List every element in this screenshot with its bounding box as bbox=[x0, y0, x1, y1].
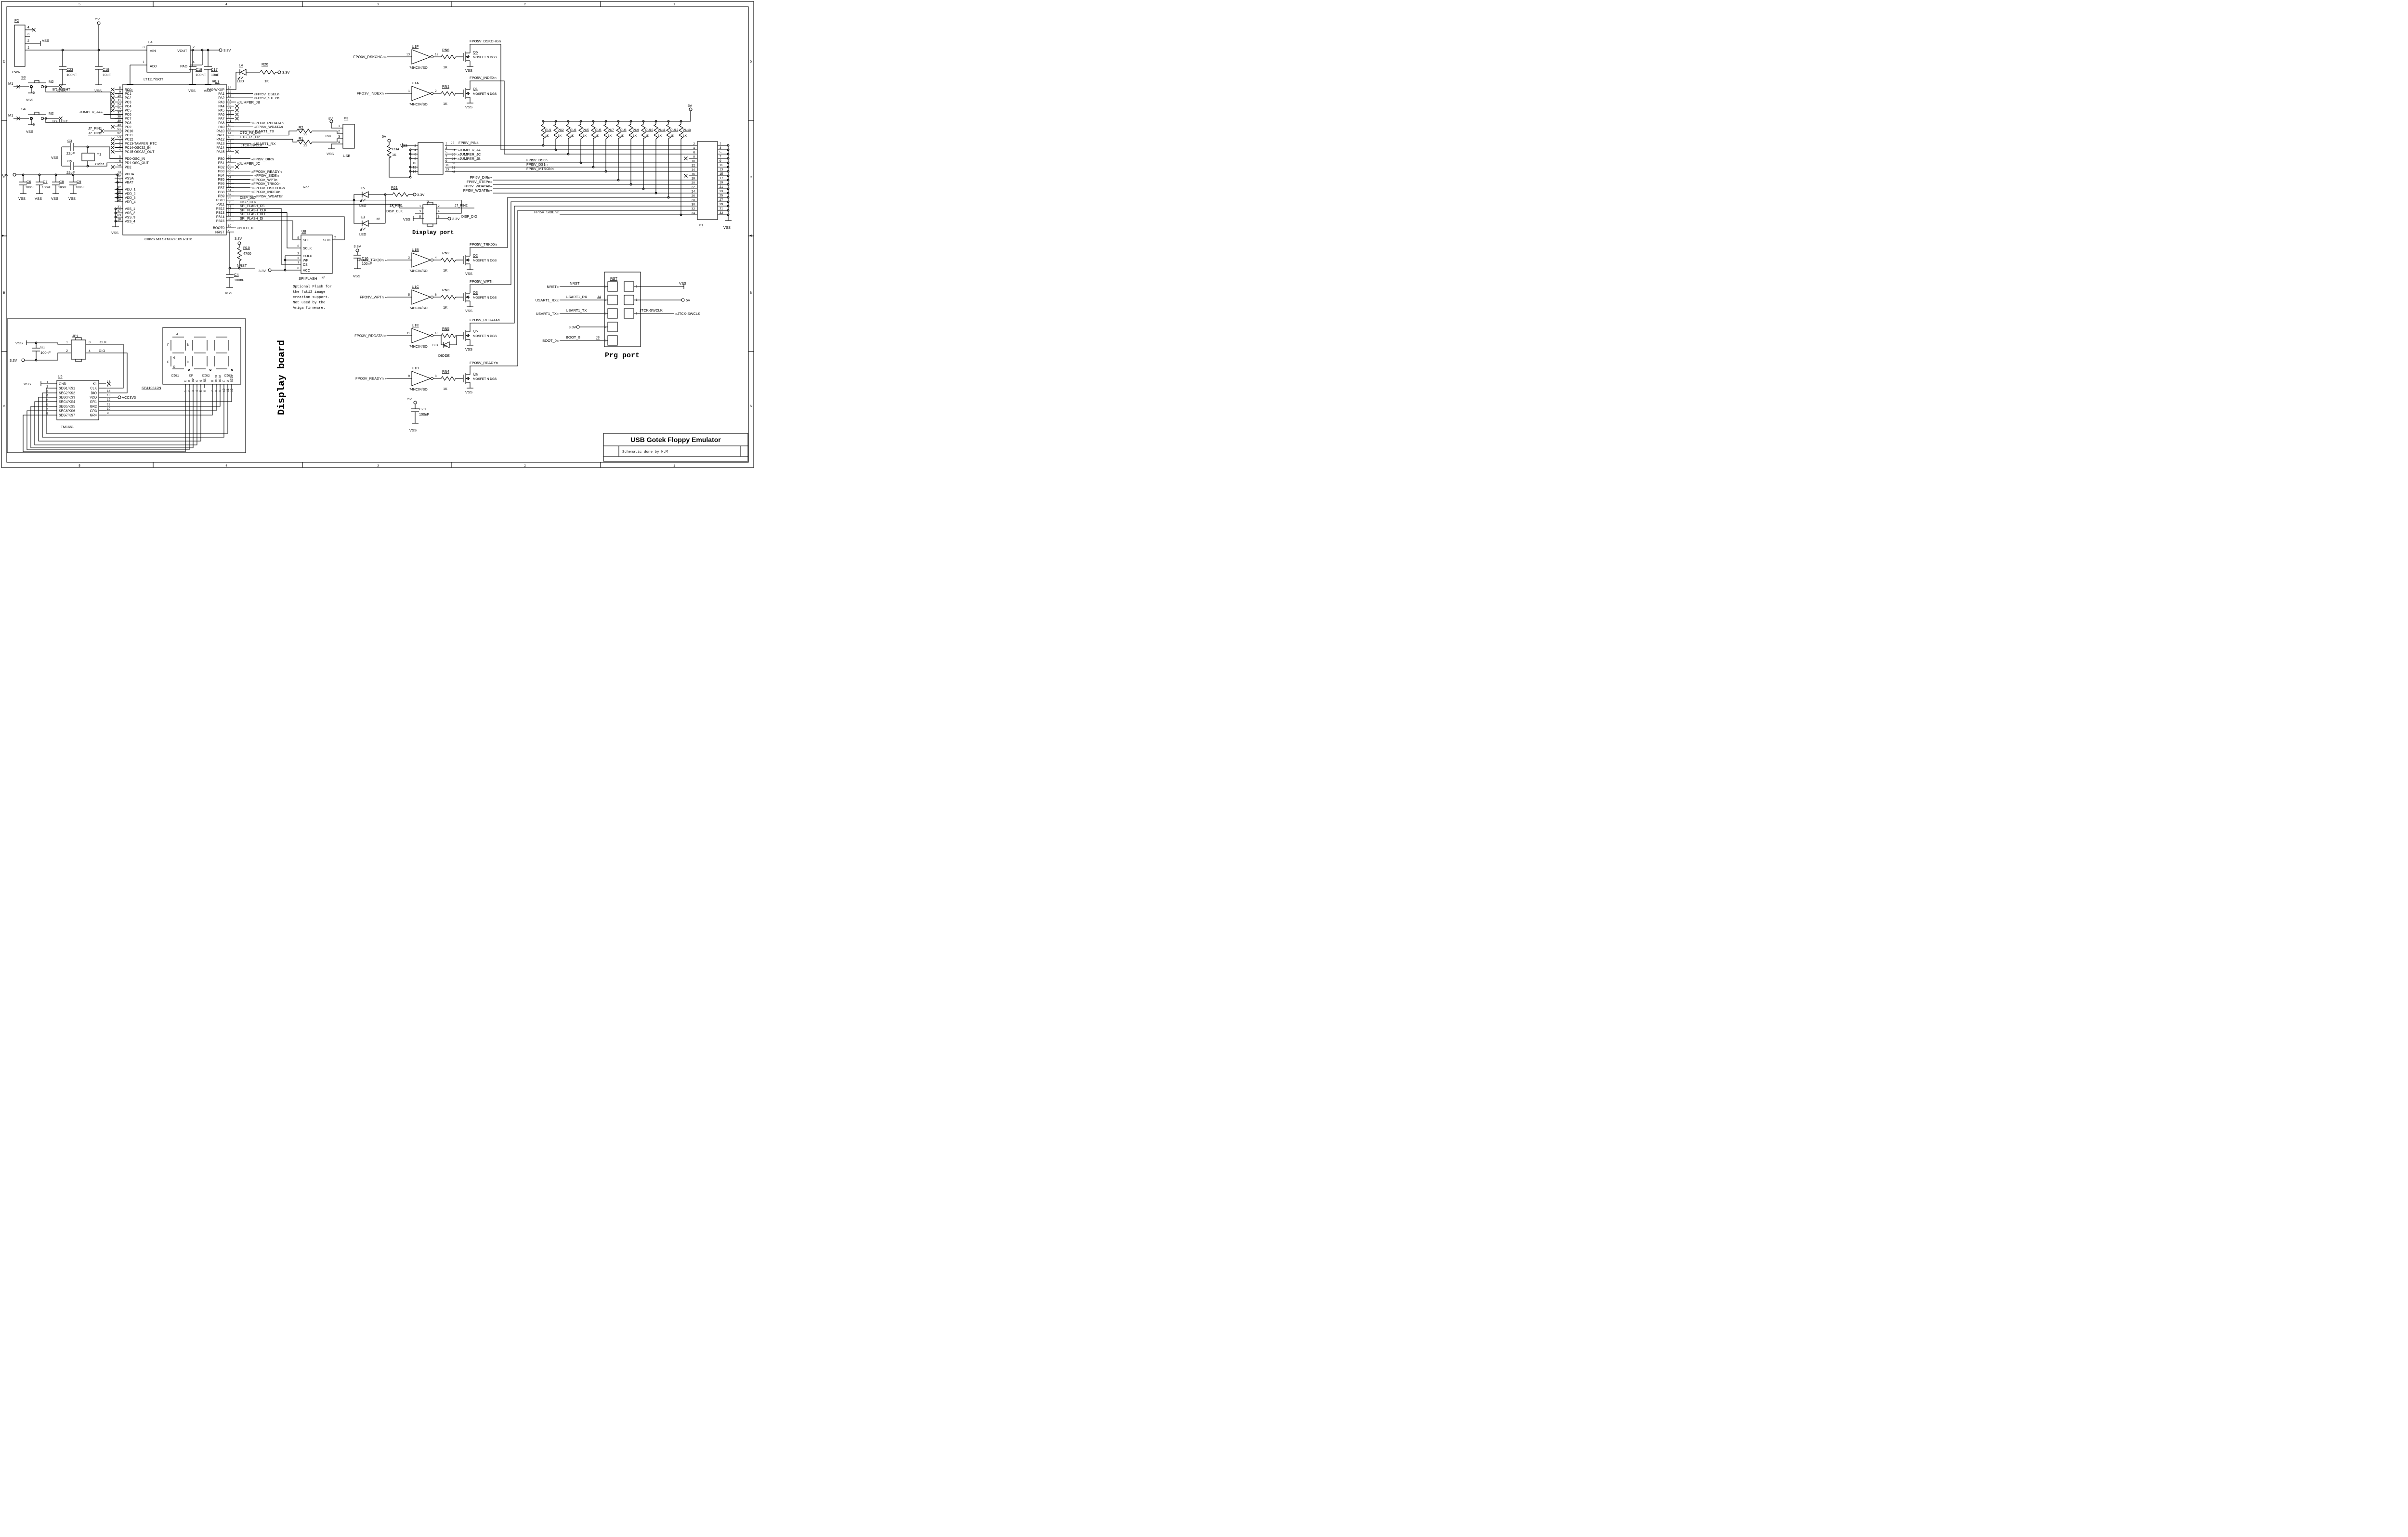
label: J7_PIN2 bbox=[455, 204, 468, 208]
label: 5V bbox=[95, 17, 100, 21]
net-label: FPO5V_WPTn bbox=[470, 279, 494, 284]
pin-number: 7 bbox=[445, 155, 447, 158]
pin-name: VDD_3 bbox=[125, 196, 136, 200]
zone-number: 1 bbox=[673, 464, 675, 468]
pin-number: 3 bbox=[720, 146, 721, 150]
resistor-value: 1K bbox=[683, 134, 687, 138]
display-pin-number: 5 bbox=[199, 390, 203, 392]
power-terminal-icon bbox=[219, 49, 222, 52]
label: RST bbox=[610, 276, 617, 281]
pin-number: 42 bbox=[228, 123, 232, 127]
resistor-icon bbox=[387, 145, 391, 158]
label: VSS bbox=[225, 291, 232, 295]
pin-number: 1 bbox=[445, 142, 447, 145]
label: 2 bbox=[338, 130, 340, 133]
label: FPI5V_SIDEn« bbox=[534, 210, 559, 214]
pin-number: 4 bbox=[435, 256, 437, 260]
mcu-part: Cortex M3 STM32F105 RBT6 bbox=[144, 237, 192, 241]
label: SPI_FLASH_CLK bbox=[240, 209, 267, 212]
resistor-icon bbox=[566, 124, 570, 139]
label: R1 bbox=[299, 136, 303, 141]
pin-number: 6 bbox=[435, 293, 437, 297]
resistor-icon bbox=[667, 124, 670, 139]
label: 2 bbox=[193, 46, 195, 49]
display-pin-name: DIG3 bbox=[215, 375, 218, 382]
label: «FPI5V_WDATAn bbox=[254, 125, 283, 129]
zone-letter: C bbox=[750, 176, 752, 179]
vss-label: VSS bbox=[465, 347, 472, 352]
zone-letter: D bbox=[3, 60, 5, 64]
button-cap bbox=[35, 112, 39, 115]
pin-name: PA13 bbox=[216, 142, 224, 145]
label: 3 bbox=[27, 33, 29, 36]
label: M2 bbox=[49, 111, 53, 116]
pin-number: 46 bbox=[228, 140, 232, 143]
net-label: FPO3V_INDEXn » bbox=[357, 91, 387, 96]
label: JA bbox=[452, 149, 456, 152]
label: C17 bbox=[211, 67, 218, 72]
label: »JUMPER_JC bbox=[458, 152, 481, 156]
pin-number: 11 bbox=[118, 99, 121, 102]
resistor-value: 1K bbox=[443, 102, 447, 106]
label: 3.3V bbox=[569, 325, 576, 329]
label: J4 bbox=[597, 295, 601, 299]
pin-name: VDD_4 bbox=[125, 201, 136, 204]
label: 3.3V bbox=[1, 173, 8, 177]
resistor-value: 1K bbox=[658, 134, 662, 138]
label: DIG3 bbox=[224, 374, 232, 378]
pin-name: PC11 bbox=[125, 134, 133, 137]
pin-number: 29 bbox=[228, 197, 232, 200]
label: FPI5V_WDATAn« bbox=[464, 184, 492, 188]
label: «FPI5V_SIDEn bbox=[254, 173, 279, 178]
pin-name: PA2 bbox=[218, 97, 224, 100]
display-pin-number: 1 bbox=[184, 390, 187, 392]
pin-number: 15 bbox=[228, 91, 232, 94]
resistor-icon bbox=[629, 124, 633, 139]
label: C7 bbox=[43, 180, 48, 184]
led-icon bbox=[363, 221, 368, 226]
pin-number: 1 bbox=[636, 285, 638, 288]
prg-pin-box bbox=[608, 295, 617, 305]
display-pin-name: C bbox=[196, 380, 199, 382]
label: 3 bbox=[143, 46, 144, 49]
pin-number: 57 bbox=[228, 176, 232, 180]
gate-part: 74HC04/SO bbox=[409, 388, 428, 391]
pin-number: 10 bbox=[107, 407, 111, 411]
label: 1 bbox=[143, 61, 144, 64]
resistor-icon bbox=[554, 124, 558, 139]
zone-number: 2 bbox=[524, 3, 526, 6]
pin-name: GR1 bbox=[90, 401, 97, 404]
resistor-value: 1K bbox=[443, 387, 447, 391]
label: OTG_FS_DM bbox=[240, 131, 261, 135]
label: 4 bbox=[438, 210, 440, 213]
pin-number: 16 bbox=[107, 380, 111, 384]
resistor-ref: RN5 bbox=[442, 326, 449, 331]
label: USART1_RX« bbox=[536, 298, 559, 302]
prg-pin-box bbox=[608, 322, 617, 332]
label: »JTCK-SWCLK bbox=[675, 312, 700, 316]
label: VSS bbox=[94, 89, 102, 93]
pin-number: 4 bbox=[414, 149, 416, 152]
label: 2 bbox=[33, 91, 35, 95]
mosfet-ref: Q3 bbox=[473, 290, 478, 295]
pin-number: 8 bbox=[119, 86, 121, 90]
display-pin-number: 3 bbox=[192, 390, 195, 392]
pin-name: PA9 bbox=[218, 126, 224, 129]
resistor-value: 1K bbox=[443, 268, 447, 273]
label: DISP_DIO bbox=[461, 215, 477, 219]
pin-number: 9 bbox=[720, 159, 721, 163]
mosfet-ref: Q6 bbox=[473, 50, 478, 54]
pin-name: PB11 bbox=[216, 203, 224, 207]
label: 10uF bbox=[103, 73, 111, 77]
label: 3.3V bbox=[223, 48, 231, 52]
label: VIN bbox=[150, 49, 156, 53]
mosfet-part: MOSFET N DGS bbox=[473, 296, 497, 300]
resistor-icon bbox=[679, 124, 683, 139]
wire bbox=[58, 353, 71, 360]
dp-dot bbox=[188, 369, 190, 371]
wire bbox=[470, 197, 697, 247]
vss-label: VSS bbox=[465, 309, 472, 313]
pin-number: 6 bbox=[119, 159, 121, 163]
pin-number: 4 bbox=[46, 394, 48, 398]
pin-name: HOLD bbox=[303, 255, 312, 258]
mosfet-part: MOSFET N DGS bbox=[473, 92, 497, 96]
label: OTG_FS_DP bbox=[240, 136, 260, 139]
label: VSS bbox=[111, 231, 118, 235]
label: BOOT_0« bbox=[542, 339, 559, 343]
label: 22pF bbox=[66, 151, 75, 156]
pin-number: 3 bbox=[119, 144, 121, 147]
display-pin-name: DIG2 bbox=[219, 375, 222, 382]
pin-number: 21 bbox=[720, 185, 723, 189]
label: DISP_CLK bbox=[240, 201, 256, 204]
label: 100nF bbox=[76, 186, 84, 189]
power-terminal-icon bbox=[22, 359, 25, 362]
label: BOOT_0 bbox=[566, 335, 580, 339]
label: VCC3V3 bbox=[122, 395, 136, 400]
label: 3.3V bbox=[417, 193, 424, 197]
resistor-value: 1K bbox=[595, 134, 600, 138]
pin-number: 17 bbox=[720, 177, 723, 180]
pin-number: 61 bbox=[228, 188, 232, 192]
pin-name: PB1 bbox=[218, 162, 224, 165]
label: «JUMPER_JC bbox=[237, 161, 261, 166]
label: »FPO3V_INDEXn bbox=[251, 190, 280, 194]
label: PAD bbox=[180, 64, 187, 68]
resistor-ref: PU10 bbox=[645, 129, 654, 132]
pin-number: 5 bbox=[46, 399, 48, 402]
pin-number: 6 bbox=[46, 404, 48, 407]
resistor-value: 1K bbox=[620, 134, 625, 138]
resistor-icon bbox=[616, 124, 620, 139]
pin-number: 15 bbox=[720, 172, 723, 176]
label: JTCK-SWCLK bbox=[241, 144, 262, 147]
wire bbox=[331, 144, 343, 149]
pin-name: PC3 bbox=[125, 101, 131, 104]
display-pin-number: 2 bbox=[188, 390, 191, 392]
label: 100nF bbox=[58, 186, 67, 189]
label: 3.3V bbox=[452, 217, 459, 221]
power-terminal-icon bbox=[689, 108, 692, 111]
label: 3.3V bbox=[10, 358, 17, 363]
label: 10uF bbox=[211, 73, 220, 77]
pin-name: PA4 bbox=[218, 105, 224, 108]
button-contact bbox=[41, 85, 43, 88]
led-icon bbox=[240, 69, 246, 75]
pin-number: 12 bbox=[435, 53, 439, 56]
display-pin-name: DP bbox=[192, 378, 195, 382]
inverter-gate-icon bbox=[412, 86, 431, 101]
label: 4 bbox=[89, 350, 91, 353]
pin-name: PC14-OSC32_IN bbox=[125, 146, 151, 150]
label: 22 bbox=[303, 143, 307, 147]
pin-number: 17 bbox=[228, 99, 232, 102]
gate-ref: U1A bbox=[412, 81, 419, 85]
pin-name: PC2 bbox=[125, 97, 131, 100]
pin-number: 64 bbox=[118, 194, 121, 197]
label: S3 bbox=[21, 75, 26, 79]
pin-name: PB6 bbox=[218, 182, 224, 186]
label: C20 bbox=[419, 407, 426, 411]
label: VSS bbox=[26, 98, 33, 102]
label: 100nF bbox=[40, 351, 51, 355]
pin-number: 2 bbox=[435, 90, 437, 93]
label: 5V bbox=[328, 117, 333, 121]
pin-number: 54 bbox=[118, 164, 121, 167]
label: FPI5V_MTRONn bbox=[526, 167, 554, 171]
wire bbox=[363, 228, 366, 230]
label: «JUMPER_JB bbox=[237, 100, 260, 104]
display-pin-number: 7 bbox=[211, 390, 214, 392]
pin-name: SEG5/KS5 bbox=[59, 405, 75, 409]
ref: U5 bbox=[58, 374, 63, 378]
pin-number: 2 bbox=[414, 144, 416, 148]
power-terminal-icon bbox=[13, 173, 16, 176]
led-icon bbox=[363, 192, 368, 197]
resistor-value: 1K bbox=[545, 134, 550, 138]
vss-label: VSS bbox=[465, 390, 472, 394]
zone-number: 1 bbox=[673, 3, 675, 6]
label: VSS bbox=[679, 281, 686, 286]
pin-name: SEG3/KS3 bbox=[59, 396, 75, 400]
label: VSS bbox=[353, 274, 360, 278]
label: VSS bbox=[26, 130, 33, 134]
label: 100nF bbox=[66, 73, 77, 77]
pin-name: PB9 bbox=[218, 195, 224, 198]
pin-name: VSSA bbox=[125, 177, 134, 181]
resistor-ref: PU1 bbox=[545, 129, 551, 132]
pin-name: PC10 bbox=[125, 130, 133, 133]
gate-ref: U1C bbox=[412, 285, 419, 289]
label: J3 bbox=[596, 335, 600, 339]
pin-number: 31 bbox=[118, 206, 121, 209]
label: VSS bbox=[188, 89, 196, 93]
pin-number: 13 bbox=[720, 168, 723, 171]
label: 1 bbox=[338, 125, 340, 128]
mosfet-ref: Q1 bbox=[473, 87, 478, 91]
pin-number: 41 bbox=[228, 119, 232, 123]
pin-number: 1 bbox=[408, 90, 410, 93]
pin-number: 26 bbox=[228, 156, 232, 159]
resistor-ref: RN6 bbox=[442, 48, 449, 52]
pin-number: 14 bbox=[228, 86, 232, 90]
pin-name: PB13 bbox=[216, 211, 224, 215]
pin-name: VDDA bbox=[125, 173, 134, 176]
display-pin-number: 8 bbox=[215, 390, 218, 392]
resistor-ref: PU7 bbox=[608, 129, 614, 132]
resistor-ref: PU13 bbox=[683, 129, 691, 132]
pin-number: 38 bbox=[118, 115, 121, 118]
label: 100nF bbox=[419, 412, 430, 417]
power-terminal-icon bbox=[681, 299, 684, 301]
pin-number: 9 bbox=[107, 412, 109, 415]
pin-number: 3 bbox=[46, 390, 48, 393]
label: USART1_TX bbox=[566, 308, 587, 313]
pin-name: PA7 bbox=[218, 117, 224, 121]
label: DP bbox=[189, 374, 193, 378]
wire bbox=[31, 384, 193, 448]
label: A bbox=[176, 333, 178, 336]
net-label: FPO5V_READYn bbox=[470, 361, 498, 365]
edge-arrow-icon: ▶ bbox=[2, 234, 4, 237]
mosfet-part: MOSFET N DGS bbox=[473, 335, 497, 338]
zone-letter: A bbox=[3, 404, 5, 408]
pin-name: PA5 bbox=[218, 109, 224, 113]
pin-number: 3 bbox=[297, 257, 299, 260]
display-pin-number: 12 bbox=[230, 388, 234, 392]
power-terminal-icon bbox=[97, 22, 100, 25]
pin-number: 5 bbox=[720, 151, 721, 154]
pin-number: 8 bbox=[414, 157, 416, 161]
label: FPI5V_STEPn« bbox=[467, 180, 492, 184]
pin-name: SCLK bbox=[303, 247, 312, 250]
pin-number: 13 bbox=[118, 170, 121, 174]
power-terminal-icon bbox=[576, 326, 579, 328]
label: 4 bbox=[193, 61, 195, 64]
label: R10 bbox=[243, 246, 250, 250]
label: 4700 bbox=[243, 251, 251, 256]
power-terminal-icon bbox=[118, 396, 121, 399]
diode-label: DIODE bbox=[438, 353, 450, 358]
label: 3 bbox=[419, 210, 421, 213]
pin-number: 51 bbox=[118, 128, 121, 131]
resistor-icon bbox=[441, 334, 456, 338]
pin-number: 26 bbox=[692, 195, 695, 198]
pin-number: 5 bbox=[445, 151, 447, 154]
prg-pin-box bbox=[624, 295, 634, 305]
pin-number: 33 bbox=[720, 211, 723, 215]
resistor-ref: PU12 bbox=[670, 129, 679, 132]
label: LT1117/SOT bbox=[144, 77, 164, 81]
mosfet-ref: Q4 bbox=[473, 372, 478, 376]
pin-number: 37 bbox=[118, 111, 121, 115]
pin-name: PA11 bbox=[217, 134, 224, 137]
label: M0 bbox=[452, 170, 456, 174]
prg-pin-box bbox=[624, 309, 634, 318]
label: U4 bbox=[148, 40, 153, 44]
pin-number: 10 bbox=[413, 162, 417, 165]
prg-pin-box bbox=[608, 336, 617, 345]
pin-name: PC5 bbox=[125, 109, 131, 113]
resistor-icon bbox=[579, 124, 583, 139]
pin-name: GR2 bbox=[90, 405, 97, 409]
label: «FPI5V_STEPn bbox=[254, 96, 279, 100]
pin-number: 12 bbox=[692, 164, 695, 168]
label: 2 bbox=[66, 350, 68, 353]
label: E bbox=[167, 361, 169, 364]
label: DISP_CLK bbox=[386, 210, 403, 213]
label: FPI5V_DIRn« bbox=[470, 175, 492, 180]
resistor-icon bbox=[591, 124, 595, 139]
pin-number: 7 bbox=[297, 252, 299, 256]
pin-number: 8 bbox=[435, 375, 437, 378]
pin-number: 63 bbox=[118, 214, 121, 217]
label: M2 bbox=[49, 79, 53, 84]
pin-name: VDD bbox=[90, 396, 97, 400]
label: »JUMPER_JB bbox=[458, 156, 481, 161]
pin-number: 2 bbox=[46, 385, 48, 389]
label: 22 bbox=[303, 132, 307, 136]
wire bbox=[449, 336, 457, 345]
label: J7 bbox=[426, 199, 430, 203]
label: 4 bbox=[27, 26, 29, 29]
resistor-icon bbox=[641, 124, 645, 139]
pin-number: 7 bbox=[720, 155, 721, 158]
display-pin-number: 6 bbox=[203, 390, 207, 392]
connector-jp1 bbox=[71, 340, 86, 359]
pin-number: 16 bbox=[228, 94, 232, 98]
label: BT_RIGHT bbox=[52, 87, 71, 91]
label: SPI_FLASH_DI bbox=[240, 217, 263, 221]
label: C4 bbox=[234, 273, 239, 277]
display-pin-number: 9 bbox=[219, 390, 222, 392]
display-pin-number: 11 bbox=[226, 388, 230, 392]
label: R20 bbox=[262, 62, 268, 66]
resistor-icon bbox=[441, 377, 456, 380]
pin-number: 34 bbox=[692, 212, 695, 215]
pin-name: VCC bbox=[303, 269, 310, 273]
inverter-gate-icon bbox=[412, 290, 431, 304]
label: USB bbox=[326, 135, 331, 138]
label: R21 bbox=[391, 185, 398, 190]
zone-number: 5 bbox=[79, 464, 80, 468]
label: C9 bbox=[77, 180, 81, 184]
pin-number: 33 bbox=[228, 205, 232, 208]
label: 1 bbox=[419, 205, 421, 208]
pin-number: 3 bbox=[445, 146, 447, 150]
pin-number: 18 bbox=[118, 218, 121, 221]
label: USART1_RX bbox=[566, 295, 587, 299]
power-terminal-icon bbox=[268, 269, 271, 272]
power-terminal-icon bbox=[278, 71, 281, 74]
pin-name: GR4 bbox=[90, 414, 97, 417]
wire bbox=[331, 123, 343, 128]
label: DIG1 bbox=[171, 374, 179, 378]
pin-number: 13 bbox=[107, 394, 111, 397]
pin-number: 27 bbox=[720, 198, 723, 202]
label: NP bbox=[377, 218, 380, 221]
pin-number: 11 bbox=[406, 332, 410, 335]
pin-number: 4 bbox=[119, 148, 121, 152]
pin-name: PB3 bbox=[218, 170, 224, 173]
label: 3 bbox=[338, 135, 340, 139]
label: BT_LEFT bbox=[52, 119, 68, 123]
pin-number: 1 bbox=[604, 285, 606, 288]
